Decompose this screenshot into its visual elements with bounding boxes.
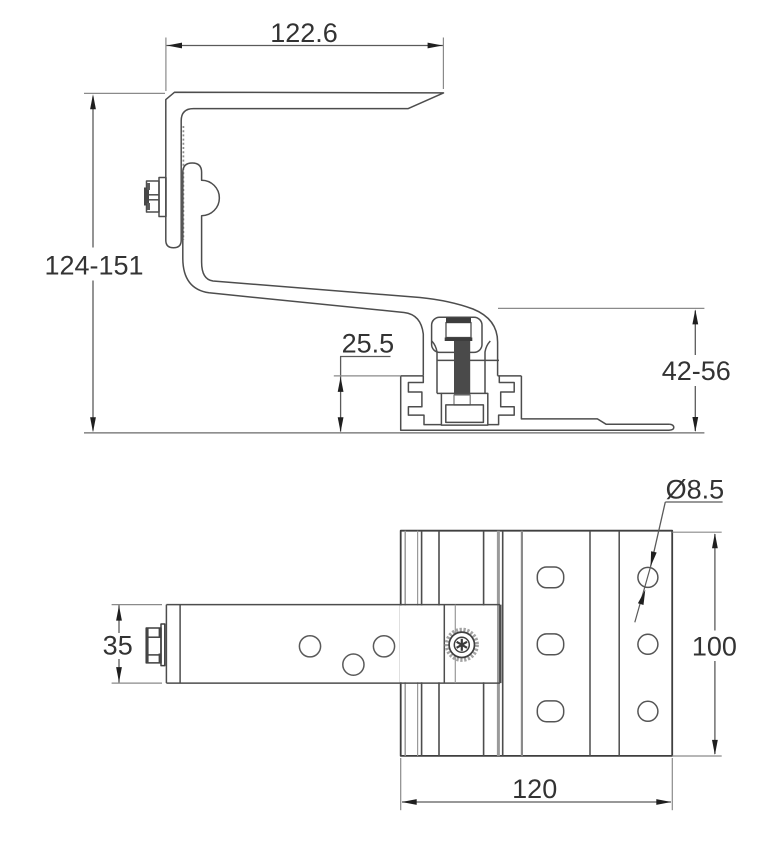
svg-text:35: 35 <box>103 631 133 661</box>
svg-text:120: 120 <box>512 774 557 804</box>
svg-text:25.5: 25.5 <box>342 328 395 358</box>
svg-text:124-151: 124-151 <box>44 251 143 281</box>
svg-text:100: 100 <box>692 631 737 661</box>
svg-text:42-56: 42-56 <box>662 356 731 386</box>
svg-text:Ø8.5: Ø8.5 <box>666 475 725 505</box>
svg-text:122.6: 122.6 <box>270 18 338 48</box>
